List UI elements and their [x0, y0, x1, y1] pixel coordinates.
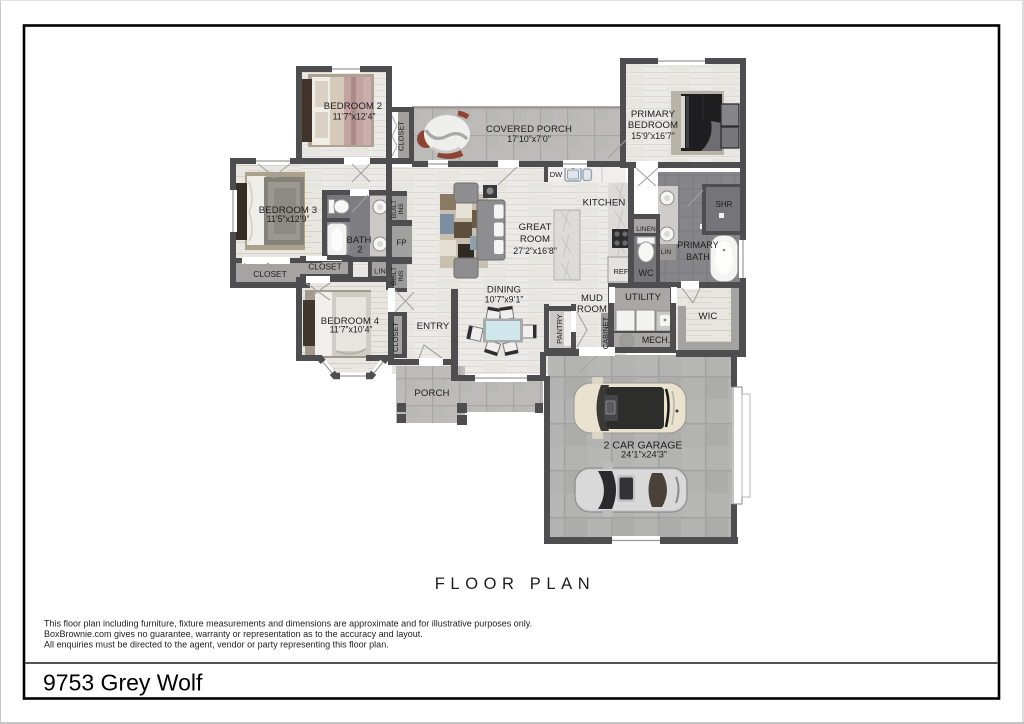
svg-text:BATH: BATH — [686, 252, 710, 262]
svg-text:27’2”x16’8”: 27’2”x16’8” — [513, 246, 557, 256]
svg-text:BUILT: BUILT — [391, 267, 398, 285]
svg-text:FP: FP — [396, 239, 406, 248]
svg-text:PORCH: PORCH — [414, 388, 449, 399]
svg-text:WIC: WIC — [699, 311, 718, 322]
svg-text:KITCHEN: KITCHEN — [583, 198, 626, 209]
svg-text:FLOOR PLAN: FLOOR PLAN — [435, 575, 596, 593]
svg-text:BEDROOM 2: BEDROOM 2 — [324, 101, 382, 112]
svg-text:SHR: SHR — [716, 200, 733, 209]
svg-text:17’10”x7’0”: 17’10”x7’0” — [507, 134, 551, 144]
svg-text:PANTRY: PANTRY — [555, 314, 564, 344]
svg-text:PRIMARY: PRIMARY — [631, 109, 676, 120]
svg-text:WC: WC — [639, 268, 654, 278]
svg-text:9753 Grey Wolf: 9753 Grey Wolf — [43, 670, 203, 696]
svg-text:DW: DW — [550, 170, 563, 179]
svg-text:CLOSET: CLOSET — [397, 121, 406, 151]
svg-text:This floor plan including furn: This floor plan including furniture, fix… — [44, 619, 532, 629]
svg-text:24’1”x24’3”: 24’1”x24’3” — [621, 450, 667, 460]
svg-text:CLOSET: CLOSET — [391, 322, 400, 352]
svg-text:INS: INS — [398, 203, 405, 215]
svg-text:2: 2 — [357, 245, 362, 256]
svg-text:GREAT: GREAT — [519, 222, 552, 233]
svg-text:LIN: LIN — [661, 249, 671, 256]
svg-text:ROOM: ROOM — [577, 304, 607, 315]
svg-text:BEDROOM: BEDROOM — [628, 120, 678, 131]
svg-text:11’5”x12’9”: 11’5”x12’9” — [267, 214, 310, 224]
svg-text:11’7”x10’4”: 11’7”x10’4” — [330, 325, 373, 335]
svg-text:15’9”x16’7”: 15’9”x16’7” — [631, 131, 675, 141]
svg-text:UTILITY: UTILITY — [625, 292, 662, 303]
svg-text:ROOM: ROOM — [520, 234, 550, 245]
svg-text:11’7”x12’4”: 11’7”x12’4” — [333, 112, 376, 122]
svg-text:BoxBrownie.com gives no guaran: BoxBrownie.com gives no guarantee, warra… — [44, 629, 423, 639]
svg-text:CLOSET: CLOSET — [253, 269, 287, 279]
svg-text:CLOSET: CLOSET — [308, 262, 342, 272]
svg-text:BUILT: BUILT — [391, 200, 398, 218]
svg-text:CABINET: CABINET — [601, 316, 610, 349]
svg-text:INS: INS — [398, 270, 405, 282]
svg-text:MECH.: MECH. — [642, 335, 670, 345]
svg-text:LINEN: LINEN — [636, 226, 656, 233]
svg-text:PRIMARY: PRIMARY — [677, 240, 719, 250]
svg-text:All enquiries must be directed: All enquiries must be directed to the ag… — [44, 640, 389, 650]
svg-text:LIN: LIN — [374, 267, 386, 276]
svg-text:REF: REF — [614, 267, 629, 276]
svg-text:10’7”x9’1”: 10’7”x9’1” — [485, 295, 524, 305]
svg-text:ENTRY: ENTRY — [417, 321, 450, 332]
svg-text:MUD: MUD — [581, 293, 603, 304]
